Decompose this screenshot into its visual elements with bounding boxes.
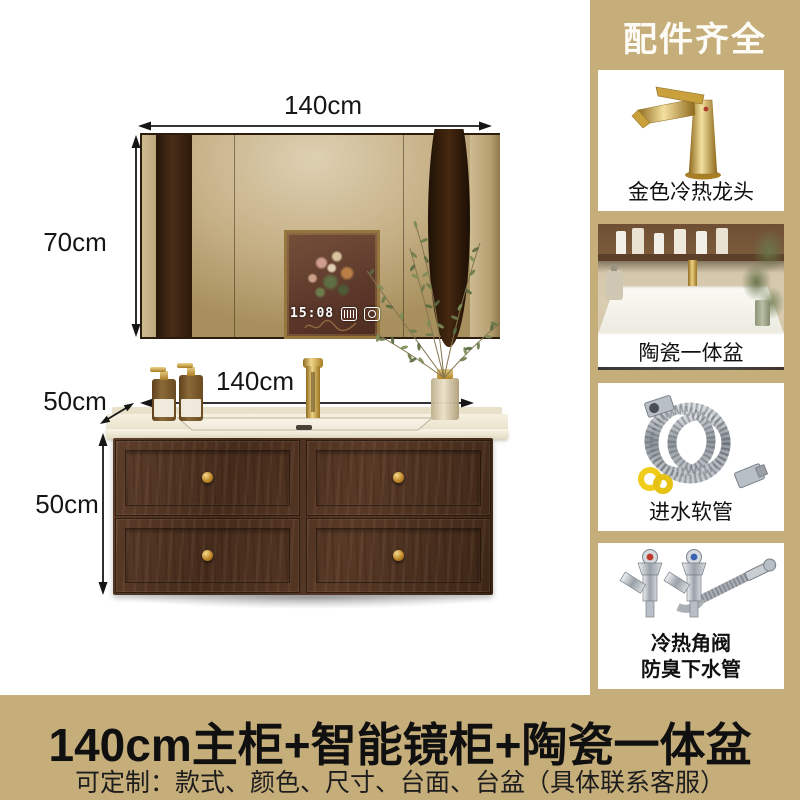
accessory-card-basin: 陶瓷一体盆 [598,224,784,370]
accessory-card-valves: 冷热角阀 防臭下水管 [598,543,784,689]
angle-valves-image [598,543,784,639]
plant [355,213,505,428]
sidebar-header: 配件齐全 [590,12,800,61]
accessory-caption: 进水软管 [598,496,784,526]
accessory-caption: 金色冷热龙头 [598,176,784,206]
accessory-caption: 陶瓷一体盆 [598,334,784,367]
accessory-caption: 冷热角阀 防臭下水管 [598,631,784,683]
customization-note: 可定制：款式、颜色、尺寸、台面、台盆（具体联系客服） [0,763,800,799]
gold-faucet [303,358,323,418]
accessory-card-faucet: 金色冷热龙头 [598,70,784,211]
soap-bottle [179,375,203,421]
accessory-card-hose: 进水软管 [598,383,784,531]
basin-overflow [296,425,312,430]
accessories-sidebar: 配件齐全 金色冷热龙头 [590,0,800,800]
basin-faucet [688,260,697,288]
bottom-banner: 140cm主柜+智能镜柜+陶瓷一体盆 可定制：款式、颜色、尺寸、台面、台盆（具体… [0,695,800,800]
soap-bottle [152,379,176,421]
inlet-hose-image [598,383,784,501]
gold-faucet-image [598,70,784,182]
product-image: 140cm 70cm 140cm 50cm 50cm 15:08 [0,0,800,800]
